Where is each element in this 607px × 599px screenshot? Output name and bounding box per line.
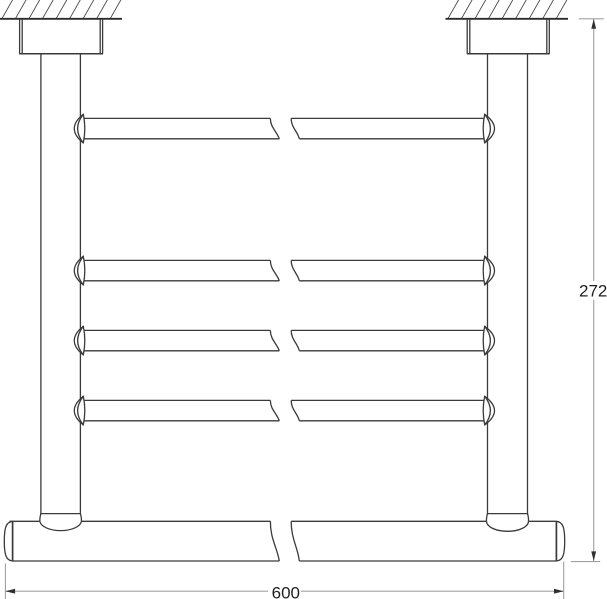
svg-text:272: 272 — [579, 282, 607, 301]
svg-text:600: 600 — [272, 584, 300, 599]
